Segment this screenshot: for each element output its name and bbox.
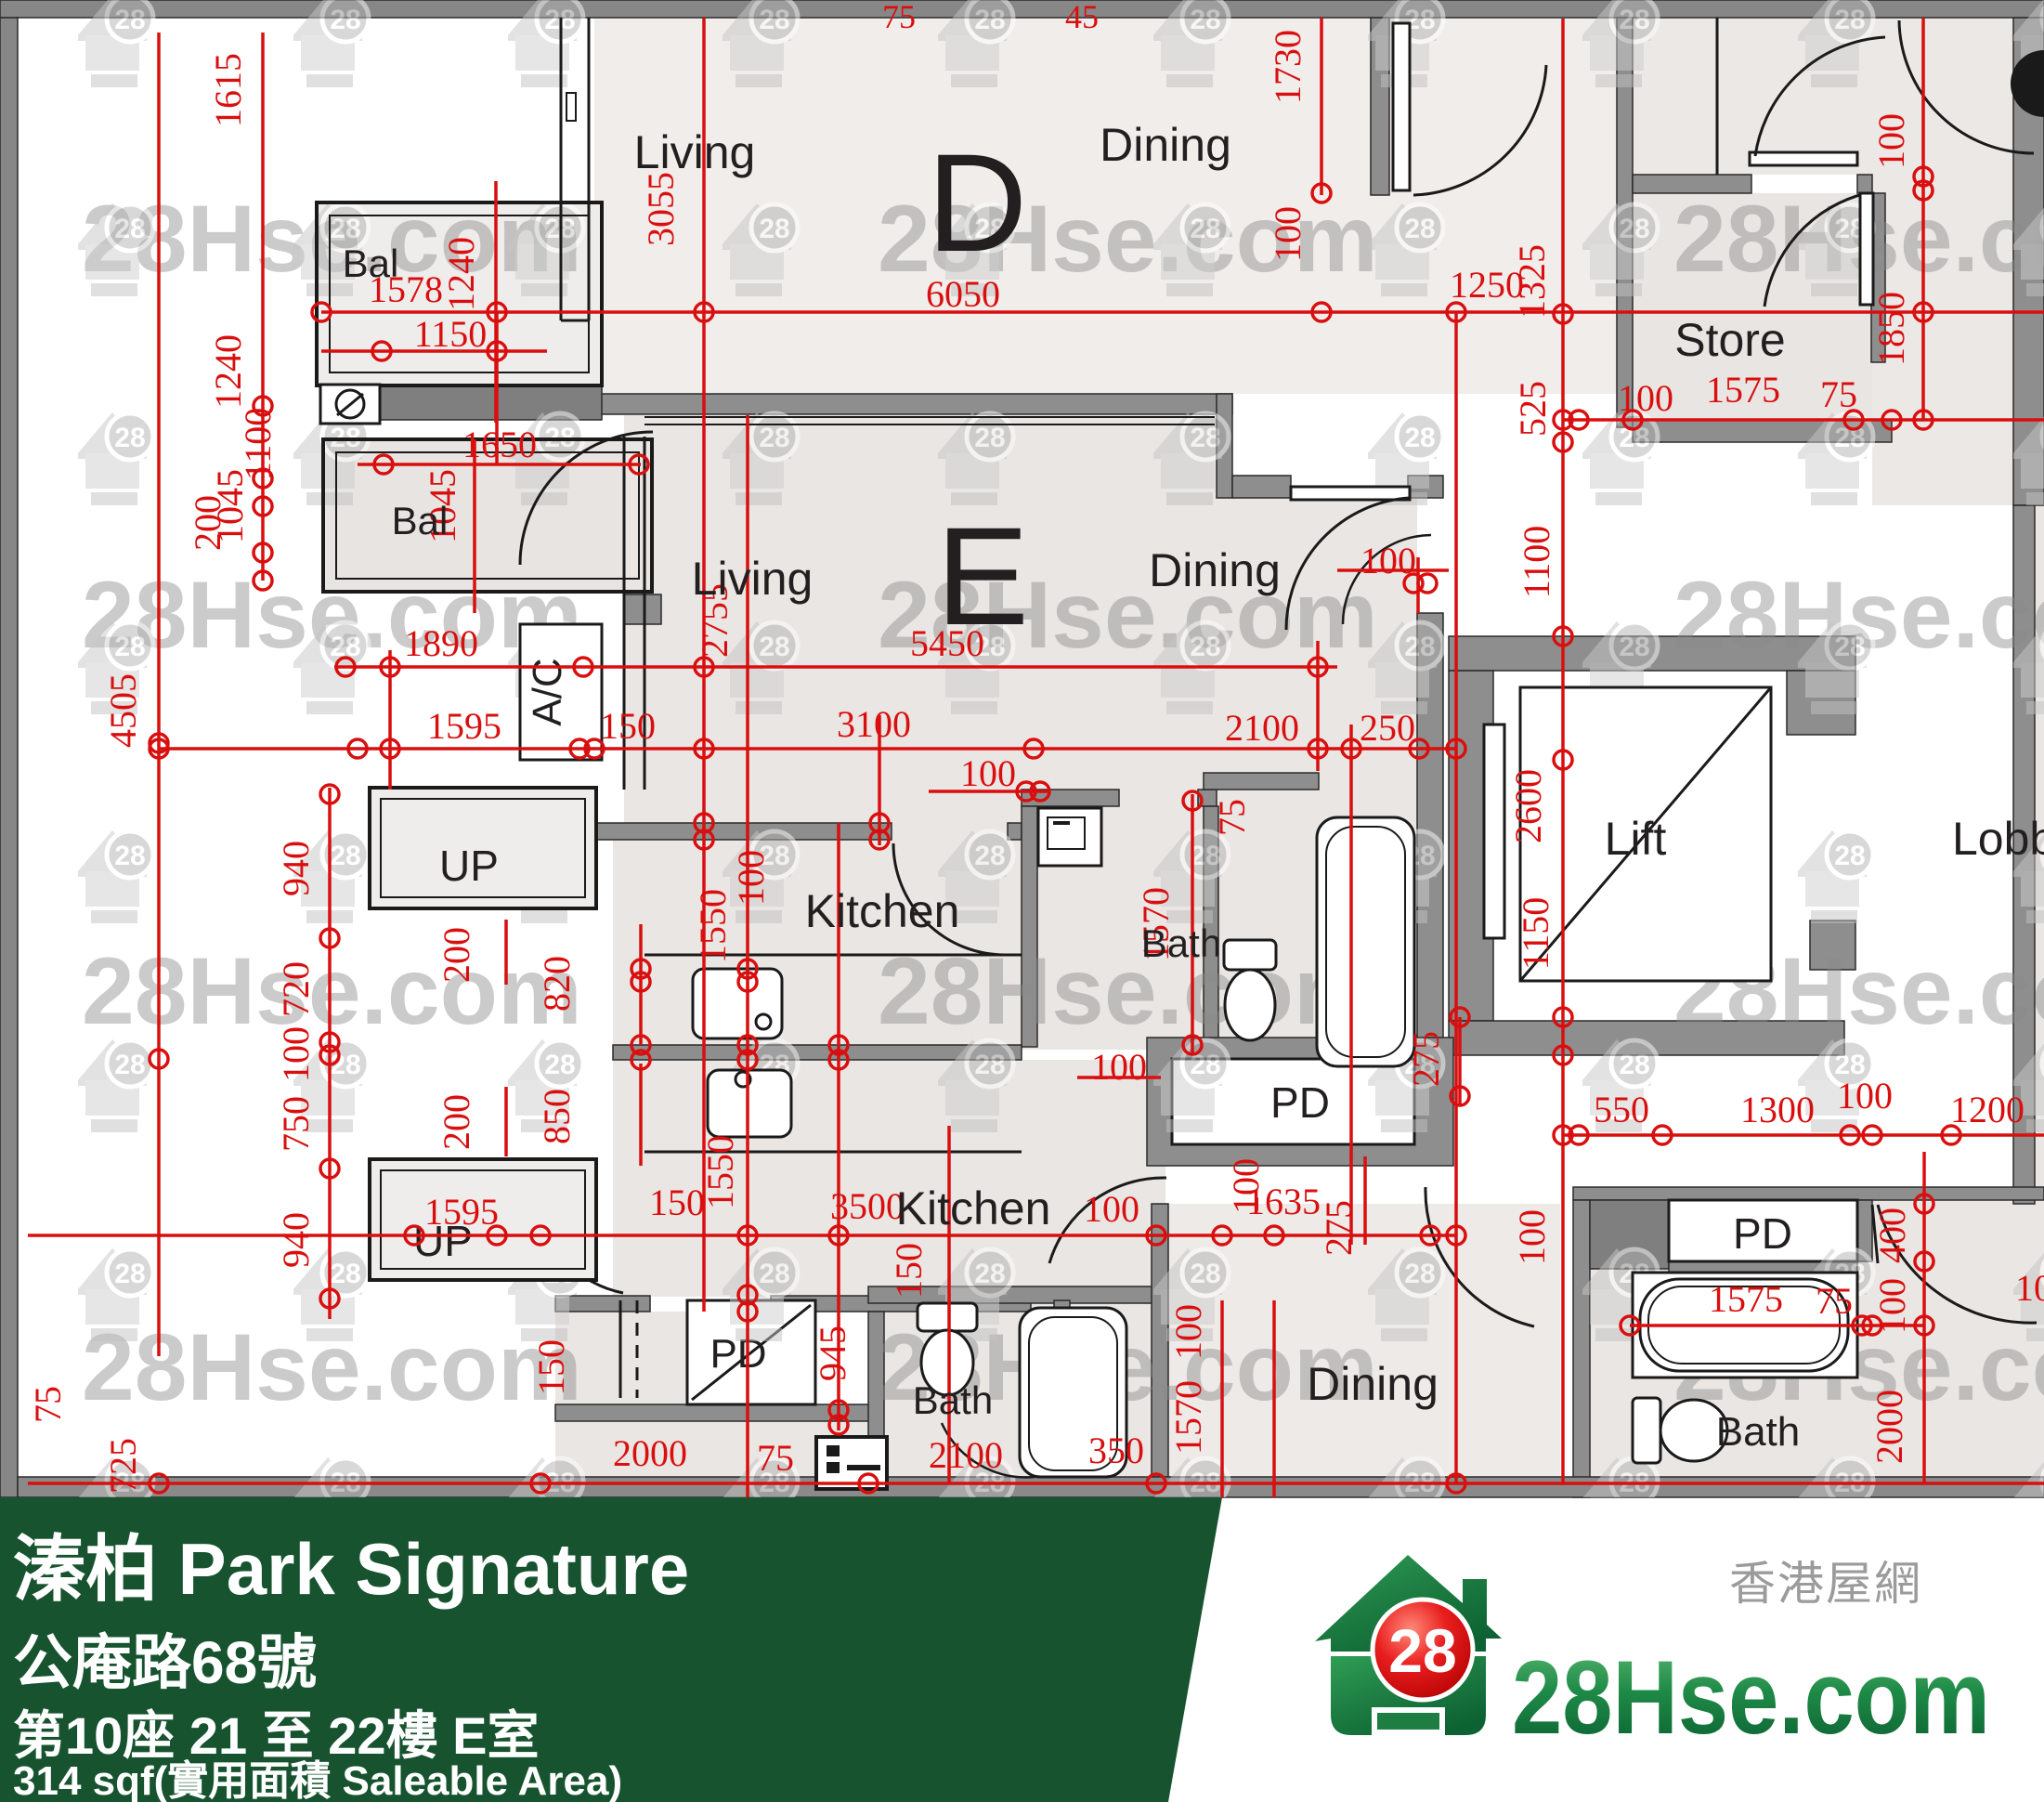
svg-text:2600: 2600	[1507, 769, 1549, 843]
svg-text:820: 820	[536, 956, 578, 1012]
svg-text:Bath: Bath	[913, 1378, 993, 1422]
svg-text:Kitchen: Kitchen	[805, 885, 960, 937]
svg-text:150: 150	[530, 1339, 572, 1395]
svg-text:75: 75	[1816, 1280, 1853, 1322]
svg-text:1240: 1240	[440, 237, 482, 311]
svg-text:75: 75	[757, 1437, 794, 1479]
svg-text:Living: Living	[634, 126, 756, 178]
svg-text:Living: Living	[692, 553, 814, 605]
svg-text:1615: 1615	[207, 53, 249, 127]
svg-text:1325: 1325	[1511, 244, 1553, 319]
svg-text:1045: 1045	[209, 469, 251, 543]
svg-text:1890: 1890	[404, 622, 478, 664]
svg-text:Store: Store	[1674, 314, 1786, 366]
svg-text:75: 75	[27, 1386, 69, 1423]
svg-text:75: 75	[882, 0, 916, 35]
svg-text:150: 150	[649, 1182, 705, 1223]
svg-text:2000: 2000	[613, 1432, 687, 1474]
svg-text:100: 100	[1225, 1158, 1267, 1214]
svg-text:100: 100	[1167, 1304, 1209, 1360]
svg-text:2100: 2100	[1225, 707, 1299, 749]
svg-text:UP: UP	[439, 842, 499, 890]
svg-text:1300: 1300	[1740, 1089, 1815, 1130]
svg-text:1200: 1200	[1950, 1089, 2024, 1130]
svg-text:100: 100	[1267, 206, 1308, 262]
svg-text:1575: 1575	[1706, 369, 1780, 411]
svg-text:1550: 1550	[699, 1135, 741, 1209]
svg-text:Bath: Bath	[1716, 1409, 1801, 1455]
svg-text:1150: 1150	[414, 313, 488, 355]
svg-text:275: 275	[1318, 1200, 1360, 1256]
svg-text:100: 100	[1618, 377, 1673, 419]
svg-text:200: 200	[436, 1094, 477, 1150]
svg-text:Lift: Lift	[1605, 813, 1667, 865]
svg-text:940: 940	[275, 841, 317, 896]
svg-text:150: 150	[888, 1243, 930, 1299]
svg-text:香港屋網: 香港屋網	[1729, 1558, 1922, 1610]
svg-text:100: 100	[275, 1026, 317, 1082]
svg-text:200: 200	[436, 927, 477, 983]
svg-text:1575: 1575	[1709, 1278, 1783, 1320]
svg-text:D: D	[927, 124, 1027, 281]
svg-text:Bath: Bath	[1141, 921, 1221, 965]
svg-text:1550: 1550	[692, 889, 734, 963]
svg-text:Dining: Dining	[1100, 119, 1231, 171]
svg-text:100: 100	[1084, 1188, 1139, 1230]
svg-text:28Hse.com: 28Hse.com	[1512, 1639, 1990, 1756]
svg-text:4505: 4505	[102, 673, 144, 748]
svg-text:公庵路68號: 公庵路68號	[13, 1629, 317, 1696]
svg-text:100: 100	[1871, 1278, 1913, 1334]
svg-text:Dining: Dining	[1149, 544, 1281, 596]
svg-text:100: 100	[960, 752, 1016, 794]
svg-text:945: 945	[812, 1325, 853, 1381]
svg-text:28: 28	[1388, 1616, 1456, 1685]
svg-text:725: 725	[102, 1438, 144, 1494]
svg-text:1650: 1650	[462, 424, 537, 465]
svg-text:75: 75	[1820, 373, 1857, 415]
svg-text:350: 350	[1088, 1430, 1144, 1471]
svg-text:第10座 21 至 22樓 E室: 第10座 21 至 22樓 E室	[13, 1706, 539, 1765]
svg-text:Dining: Dining	[1307, 1358, 1439, 1410]
svg-text:2000: 2000	[1868, 1390, 1910, 1464]
svg-text:Bal: Bal	[343, 242, 399, 285]
svg-text:Lobby: Lobby	[1952, 813, 2044, 865]
svg-text:525: 525	[1512, 381, 1554, 437]
svg-text:100: 100	[1870, 113, 1912, 169]
svg-text:100: 100	[1360, 540, 1416, 581]
svg-text:1150: 1150	[1515, 897, 1556, 971]
svg-text:3100: 3100	[837, 703, 911, 745]
svg-text:314 sqf(實用面積 Saleable Area): 314 sqf(實用面積 Saleable Area)	[13, 1758, 622, 1802]
svg-text:3500: 3500	[830, 1185, 905, 1227]
svg-text:1730: 1730	[1267, 30, 1308, 104]
svg-text:940: 940	[275, 1212, 317, 1268]
svg-text:250: 250	[1360, 707, 1415, 749]
svg-text:PD: PD	[1270, 1078, 1330, 1127]
svg-text:100: 100	[1837, 1075, 1893, 1116]
svg-text:45: 45	[1065, 0, 1099, 35]
svg-text:1240: 1240	[207, 334, 249, 409]
svg-text:3055: 3055	[640, 172, 682, 246]
svg-text:100: 100	[1091, 1046, 1147, 1088]
svg-text:10: 10	[2015, 1267, 2044, 1309]
svg-text:溱柏 Park Signature: 溱柏 Park Signature	[13, 1528, 689, 1610]
svg-text:PD: PD	[1733, 1209, 1792, 1258]
svg-text:100: 100	[1511, 1209, 1553, 1265]
svg-text:2100: 2100	[929, 1434, 1003, 1476]
svg-text:1595: 1595	[424, 1191, 499, 1233]
svg-text:850: 850	[536, 1089, 578, 1144]
svg-text:1595: 1595	[427, 705, 501, 747]
svg-text:Kitchen: Kitchen	[896, 1182, 1051, 1234]
svg-text:400: 400	[1871, 1208, 1913, 1263]
svg-text:275: 275	[1405, 1031, 1447, 1087]
svg-text:75: 75	[1211, 799, 1253, 836]
svg-text:Bal: Bal	[392, 499, 449, 542]
svg-text:1850: 1850	[1870, 292, 1912, 366]
svg-text:550: 550	[1594, 1089, 1649, 1130]
svg-text:1100: 1100	[1516, 526, 1557, 599]
svg-text:720: 720	[275, 961, 317, 1017]
svg-text:100: 100	[730, 850, 772, 906]
svg-text:1570: 1570	[1167, 1380, 1209, 1455]
svg-text:150: 150	[600, 705, 656, 747]
svg-text:E: E	[936, 498, 1029, 654]
svg-text:750: 750	[275, 1096, 317, 1152]
